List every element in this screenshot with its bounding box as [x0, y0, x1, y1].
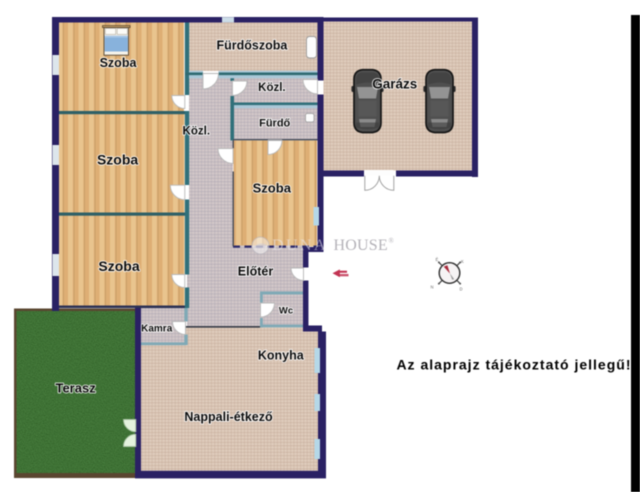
svg-text:Wc: Wc: [279, 306, 293, 317]
svg-text:Fürdőszoba: Fürdőszoba: [216, 39, 288, 53]
svg-text:Szoba: Szoba: [98, 258, 139, 274]
svg-text:HOUSE: HOUSE: [334, 237, 388, 254]
svg-text:Az alaprajz tájékoztató jelleg: Az alaprajz tájékoztató jellegű!: [396, 357, 631, 373]
svg-text:Szoba: Szoba: [97, 152, 138, 168]
svg-text:K: K: [461, 259, 464, 264]
svg-text:Nappali-étkező: Nappali-étkező: [184, 410, 273, 424]
svg-text:DUNA: DUNA: [272, 237, 328, 254]
svg-text:Konyha: Konyha: [258, 349, 305, 363]
svg-text:É: É: [436, 257, 439, 262]
svg-text:Közl.: Közl.: [183, 126, 210, 138]
svg-text:Közl.: Közl.: [258, 82, 285, 94]
svg-text:Szoba: Szoba: [100, 56, 138, 70]
svg-text:N: N: [431, 285, 434, 290]
svg-text:Terasz: Terasz: [55, 381, 96, 396]
svg-text:®: ®: [389, 237, 395, 245]
svg-text:D: D: [460, 287, 463, 292]
svg-text:Fürdő: Fürdő: [259, 118, 290, 130]
svg-text:Garázs: Garázs: [372, 77, 417, 92]
svg-text:Kamra: Kamra: [141, 324, 173, 335]
svg-text:Szoba: Szoba: [253, 181, 292, 196]
svg-text:Előtér: Előtér: [238, 265, 274, 279]
